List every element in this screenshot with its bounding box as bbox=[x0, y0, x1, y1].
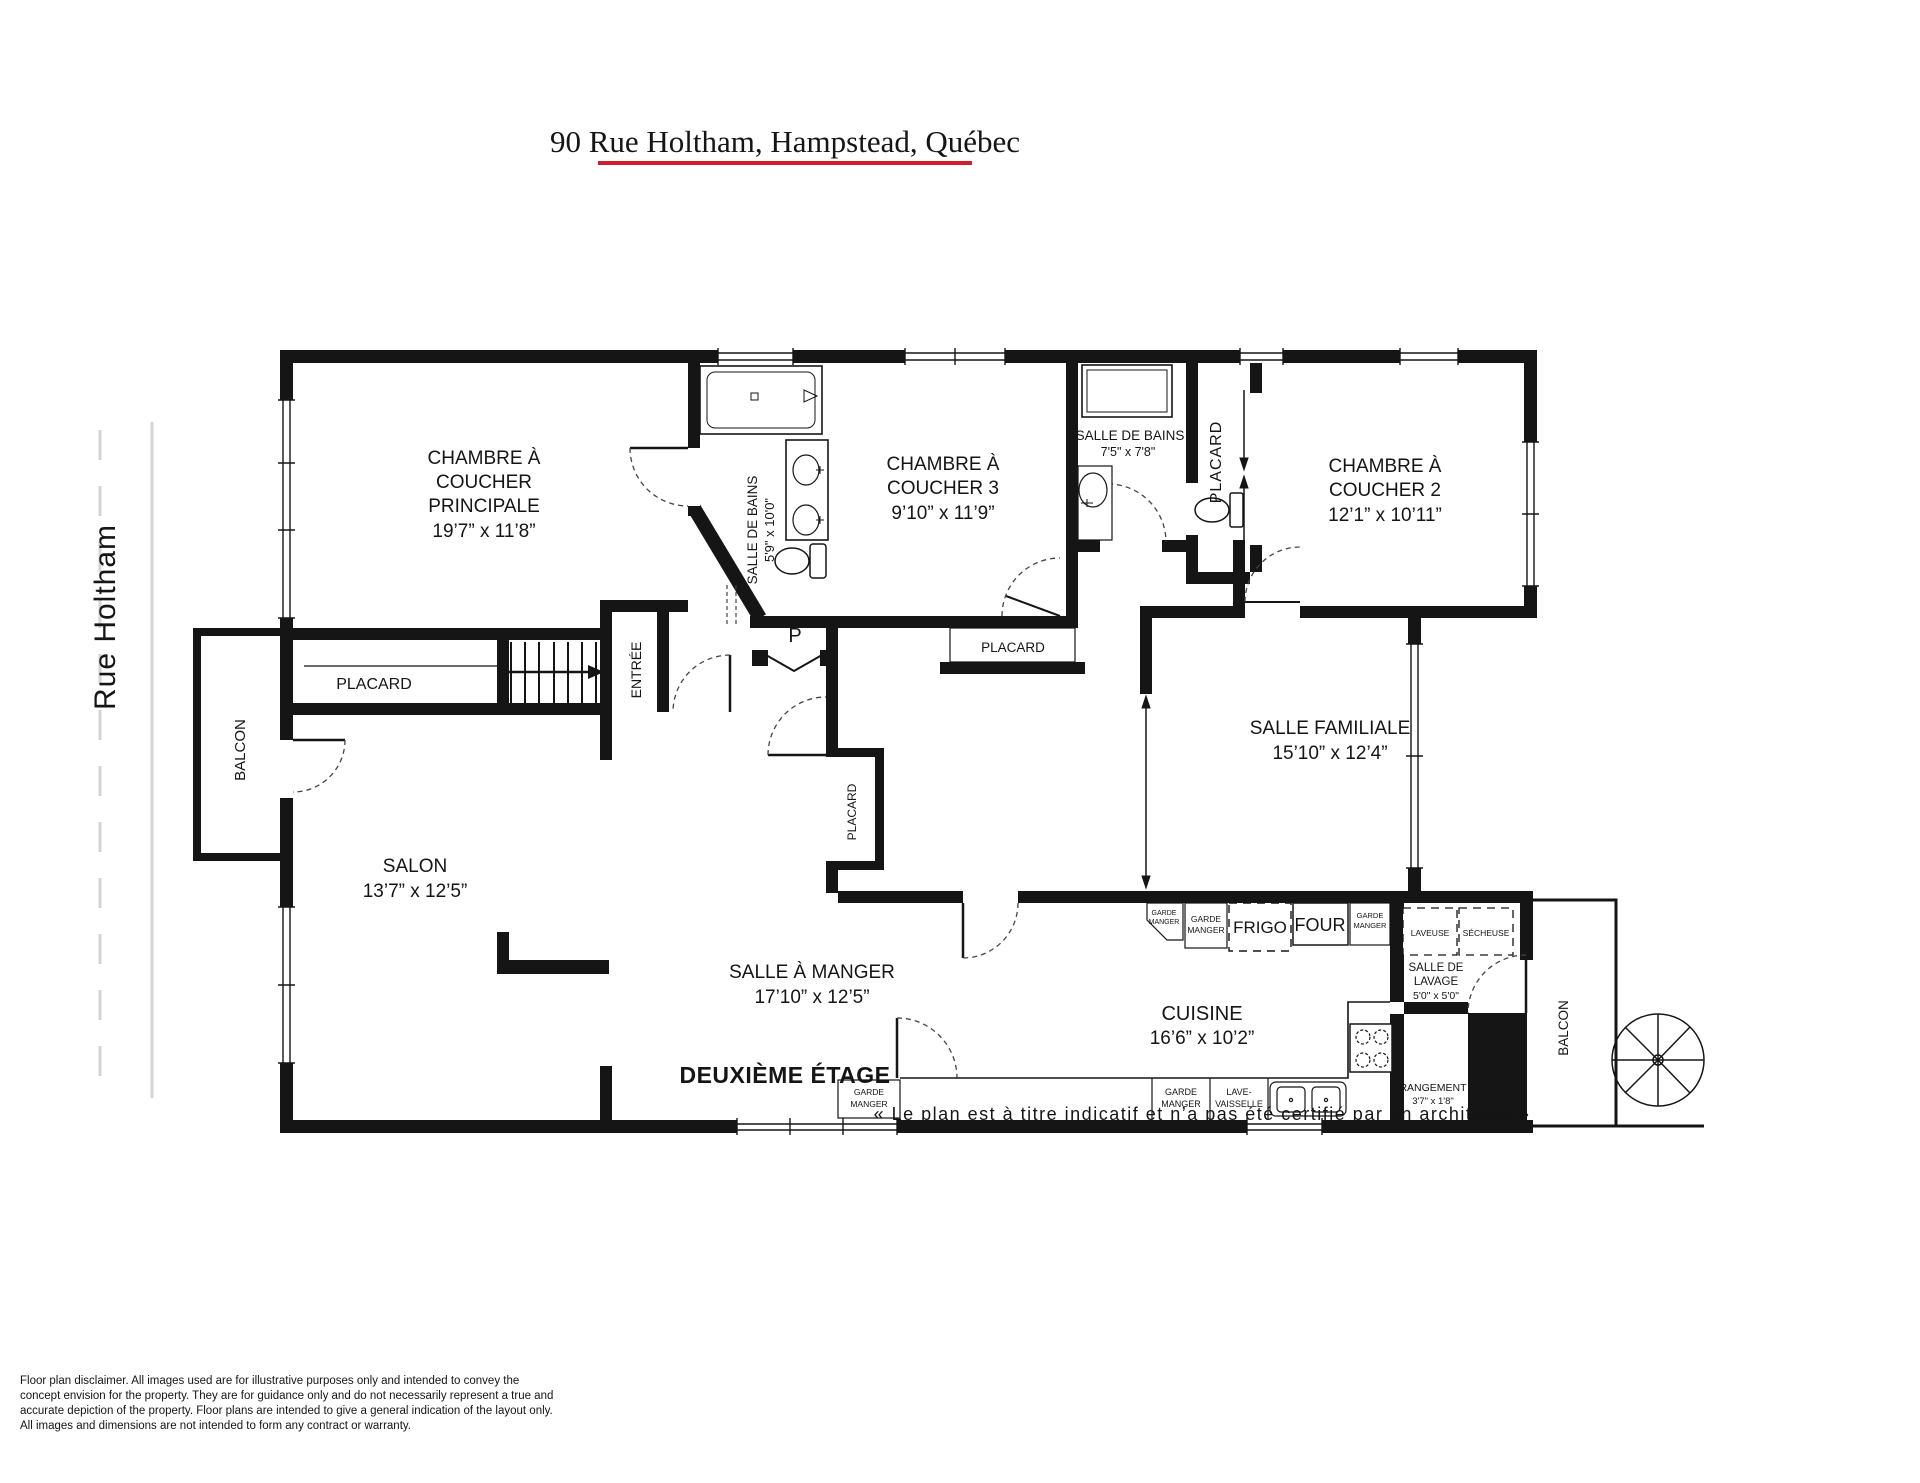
label-bed2-1: CHAMBRE À bbox=[1329, 456, 1442, 477]
label-living-dims: 13’7” x 12’5” bbox=[363, 881, 468, 902]
label-bed3-dims: 9’10” x 11’9” bbox=[891, 503, 994, 524]
disclaimer-line-3: accurate depiction of the property. Floo… bbox=[20, 1405, 553, 1417]
street-name-label: Rue Holtham bbox=[89, 524, 122, 710]
floor-plan-page: 90 Rue Holtham, Hampstead, Québec Rue Ho… bbox=[0, 0, 1920, 1483]
label-kitchen: CUISINE bbox=[1161, 1003, 1242, 1025]
staircase bbox=[505, 642, 604, 703]
label-dining: SALLE À MANGER bbox=[729, 962, 895, 983]
label-pantry4-1: GARDE bbox=[854, 1087, 885, 1097]
label-bed3-2: COUCHER 3 bbox=[887, 478, 999, 499]
label-oven: FOUR bbox=[1295, 915, 1346, 935]
disclaimer-line-1: Floor plan disclaimer. All images used a… bbox=[20, 1375, 519, 1387]
label-pantry2-1: GARDE bbox=[1191, 914, 1222, 924]
label-p-closet: P bbox=[788, 625, 801, 647]
label-storage: RANGEMENT bbox=[1399, 1082, 1467, 1094]
label-master-2: COUCHER bbox=[436, 472, 532, 493]
disclaimer-line-2: concept envision for the property. They … bbox=[20, 1390, 553, 1402]
label-family-dims: 15’10” x 12’4” bbox=[1272, 743, 1387, 764]
toilet-bath1 bbox=[775, 544, 826, 578]
label-master-1: CHAMBRE À bbox=[428, 448, 541, 469]
label-balcony-right: BALCON bbox=[1556, 1000, 1571, 1056]
label-pantry-corner-2: MANGER bbox=[1149, 919, 1180, 926]
label-fridge: FRIGO bbox=[1233, 918, 1287, 937]
label-bed2-dims: 12’1” x 10’11” bbox=[1328, 505, 1442, 526]
label-master-3: PRINCIPALE bbox=[428, 496, 540, 517]
label-bath2: SALLE DE BAINS bbox=[1076, 428, 1185, 443]
floor-plan-svg: 90 Rue Holtham, Hampstead, Québec Rue Ho… bbox=[0, 0, 1920, 1483]
floor-title: DEUXIÈME ÉTAGE bbox=[679, 1061, 890, 1088]
label-pantry2-2: MANGER bbox=[1187, 925, 1224, 935]
label-closet-hall: PLACARD bbox=[336, 676, 412, 693]
label-laundry-2: LAVAGE bbox=[1414, 976, 1459, 988]
label-bath1: SALLE DE BAINS bbox=[745, 476, 760, 585]
label-family: SALLE FAMILIALE bbox=[1250, 718, 1411, 739]
title-underline bbox=[598, 161, 972, 165]
label-pantry-corner-1: GARDE bbox=[1152, 910, 1177, 917]
label-pantry3-1: GARDE bbox=[1357, 911, 1384, 920]
label-living: SALON bbox=[383, 856, 447, 877]
vanity-double-sink bbox=[786, 440, 828, 540]
label-closet-bed3: PLACARD bbox=[981, 640, 1045, 655]
label-pantry5-1: GARDE bbox=[1165, 1087, 1197, 1097]
sink-bath2 bbox=[1078, 466, 1112, 540]
label-closet-top: PLACARD bbox=[1208, 421, 1225, 504]
label-bath2-dims: 7'5" x 7'8" bbox=[1101, 445, 1156, 459]
shower-bath2 bbox=[1082, 365, 1172, 417]
page-title: 90 Rue Holtham, Hampstead, Québec bbox=[550, 124, 1020, 159]
room-labels: CHAMBRE À COUCHER PRINCIPALE 19’7” x 11’… bbox=[232, 421, 1571, 1107]
label-washer: LAVEUSE bbox=[1411, 928, 1450, 938]
bathtub bbox=[700, 366, 822, 434]
label-balcony-left: BALCON bbox=[232, 719, 249, 781]
label-pantry3-2: MANGER bbox=[1354, 921, 1388, 930]
stove bbox=[1350, 1024, 1392, 1072]
label-bed2-2: COUCHER 2 bbox=[1329, 480, 1441, 501]
label-bed3-1: CHAMBRE À bbox=[887, 454, 1000, 475]
label-master-dims: 19’7” x 11’8” bbox=[432, 521, 535, 542]
label-kitchen-dims: 16’6” x 10’2” bbox=[1150, 1028, 1255, 1049]
label-dishwasher-1: LAVE- bbox=[1226, 1087, 1251, 1097]
certification-note: « Le plan est à titre indicatif et n’a p… bbox=[874, 1104, 1531, 1124]
label-dryer: SÉCHEUSE bbox=[1463, 928, 1510, 938]
street-markings: Rue Holtham bbox=[89, 422, 152, 1098]
label-dining-dims: 17’10” x 12’5” bbox=[754, 987, 869, 1008]
label-bath1-dims: 5'9" x 10'0" bbox=[762, 498, 777, 562]
label-laundry-1: SALLE DE bbox=[1409, 962, 1464, 974]
label-laundry-dims: 5'0" x 5'0" bbox=[1413, 990, 1459, 1002]
disclaimer-block: Floor plan disclaimer. All images used a… bbox=[20, 1375, 553, 1432]
label-closet-mid: PLACARD bbox=[845, 783, 859, 840]
disclaimer-line-4: All images and dimensions are not intend… bbox=[20, 1420, 411, 1432]
label-entry: ENTRÉE bbox=[628, 642, 644, 699]
spiral-staircase bbox=[1612, 1014, 1704, 1106]
